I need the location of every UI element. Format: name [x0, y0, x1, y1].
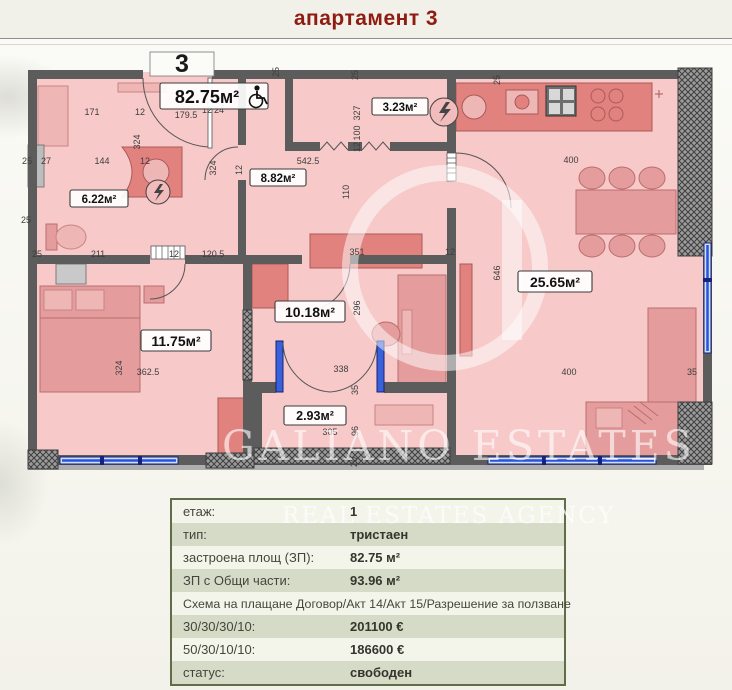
row-value: 201100 €	[343, 619, 404, 634]
table-row: тип: тристаен	[172, 523, 564, 546]
room-label-living: 25.65м²	[518, 271, 592, 292]
table-row: 30/30/30/10: 201100 €	[172, 615, 564, 638]
balcony-door-leaf	[276, 341, 283, 392]
table-row: статус: свободен	[172, 661, 564, 684]
row-label: 30/30/30/10:	[172, 619, 343, 634]
dimension-label: 400	[563, 155, 578, 165]
row-label: статус:	[172, 665, 343, 680]
table-row: ЗП с Общи части: 93.96 м²	[172, 569, 564, 592]
room-label-bathroom: 6.22м²	[70, 190, 128, 207]
table-row: 50/30/10/10: 186600 €	[172, 638, 564, 661]
dimension-label: 144	[94, 156, 109, 166]
bed	[40, 286, 140, 392]
dimension-label: 96	[350, 426, 360, 436]
dimension-label: 12	[135, 107, 145, 117]
dimension-label: 12	[140, 156, 150, 166]
room-label-bedroom-middle: 10.18м²	[275, 301, 345, 322]
dimension-label: 362.5	[137, 367, 160, 377]
table-row: етаж: 1	[172, 500, 564, 523]
dimension-label: 12	[445, 247, 455, 257]
electrical-symbol-icon	[430, 98, 458, 126]
dimension-label: 20	[349, 457, 359, 467]
dimension-label: 400	[561, 367, 576, 377]
dimension-label: 120.5	[202, 249, 225, 259]
dimension-label: 324	[132, 134, 142, 149]
dimension-label: 27	[41, 156, 51, 166]
room-label-bedroom-left: 11.75м²	[141, 330, 211, 351]
dimension-label: 110	[341, 185, 351, 199]
dimension-label: 646	[492, 265, 502, 280]
bedroom-window	[60, 456, 178, 465]
dimension-label: 25	[492, 75, 502, 85]
room-label-balcony: 2.93м²	[284, 406, 346, 425]
svg-text:11.75м²: 11.75м²	[151, 333, 201, 349]
dimension-label: 25	[271, 67, 281, 77]
title-bar: апартамент 3	[0, 0, 732, 39]
table-row: застроена площ (ЗП): 82.75 м²	[172, 546, 564, 569]
row-value: 1	[343, 504, 357, 519]
room-label-storage: 3.23м²	[372, 98, 428, 115]
dimension-label: 171	[84, 107, 99, 117]
dimension-label: 542.5	[297, 156, 320, 166]
balcony-table	[375, 405, 433, 425]
dimension-label: 100	[352, 125, 362, 140]
dimension-label: 305	[322, 427, 337, 437]
oven	[546, 86, 576, 116]
svg-text:8.82м²: 8.82м²	[261, 173, 296, 185]
dimension-label: 12	[234, 165, 244, 175]
dimension-label: 179.5	[175, 110, 198, 120]
dimension-label: 12	[352, 142, 362, 152]
row-label: застроена площ (ЗП):	[172, 550, 343, 565]
electrical-symbol-icon	[146, 180, 170, 204]
row-value: тристаен	[343, 527, 408, 542]
dimension-label: 324	[208, 160, 218, 175]
apartment-number: 3	[175, 50, 189, 78]
row-value: 186600 €	[343, 642, 404, 657]
row-label: ЗП с Общи части:	[172, 573, 343, 588]
main-area-label: 82.75м²	[160, 83, 268, 109]
dimension-label: 351	[349, 247, 364, 257]
floor-plan: 17112179.51224252714412542.52521112120.5…	[10, 50, 722, 495]
dimension-label: 12	[169, 249, 179, 259]
nightstand	[144, 286, 164, 303]
header-divider	[0, 44, 732, 45]
svg-text:10.18м²: 10.18м²	[285, 304, 335, 320]
row-label: Схема на плащане Договор/Акт 14/Акт 15/Р…	[172, 597, 575, 611]
table-row-payment-scheme: Схема на плащане Договор/Акт 14/Акт 15/Р…	[172, 592, 564, 615]
page-title: апартамент 3	[294, 7, 438, 31]
living-window-right	[703, 243, 712, 353]
tv-unit	[460, 264, 472, 356]
room-label-hallway: 8.82м²	[250, 169, 306, 186]
svg-text:25.65м²: 25.65м²	[530, 274, 580, 290]
dimension-label: 211	[91, 249, 105, 259]
svg-text:82.75м²: 82.75м²	[175, 87, 239, 107]
dimension-label: 25	[22, 156, 32, 166]
row-value: свободен	[343, 665, 412, 680]
dimension-label: 296	[352, 300, 362, 315]
living-window-bottom	[488, 456, 656, 465]
dimension-label: 324	[114, 360, 124, 375]
shower	[38, 86, 68, 146]
svg-text:3.23м²: 3.23м²	[383, 102, 418, 114]
row-label: 50/30/10/10:	[172, 642, 343, 657]
kitchen-counter	[456, 83, 663, 131]
dining-table	[576, 167, 676, 257]
dimension-label: 327	[352, 105, 362, 120]
row-label: етаж:	[172, 504, 343, 519]
dimension-label: 25	[32, 249, 42, 259]
dimension-label: 35	[687, 367, 697, 377]
dimension-label: 338	[333, 364, 348, 374]
row-label: тип:	[172, 527, 343, 542]
row-value: 93.96 м²	[343, 573, 400, 588]
toilet	[46, 224, 86, 250]
dimension-label: 25	[21, 215, 31, 225]
row-value: 82.75 м²	[343, 550, 400, 565]
dimension-label: 35	[350, 385, 360, 395]
svg-text:6.22м²: 6.22м²	[82, 194, 117, 206]
dimension-label: 25	[350, 70, 360, 80]
apartment-details-table: етаж: 1 тип: тристаен застроена площ (ЗП…	[170, 498, 566, 686]
svg-text:2.93м²: 2.93м²	[296, 409, 334, 423]
